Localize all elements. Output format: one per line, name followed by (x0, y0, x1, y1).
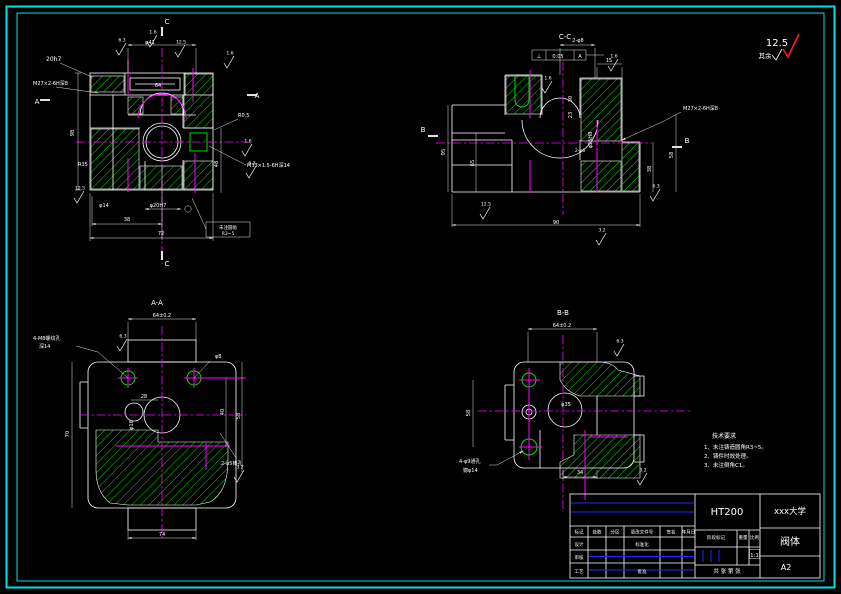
roughness-check-small-icon (772, 49, 782, 60)
notes-item-3: 3、未注倒角C1。 (704, 461, 748, 469)
tb-standardize-label: 标准化 (635, 541, 649, 548)
dimension-label: 38 (124, 217, 130, 223)
svg-text:6.3: 6.3 (119, 334, 126, 340)
dimension-label: 34 (577, 470, 583, 476)
dimension-label: C (165, 18, 170, 26)
dimension-label: φ35 (561, 402, 571, 408)
dimension-label: 30 (568, 96, 574, 102)
dimension-label: 48 (214, 161, 220, 167)
table-accent-lines (571, 503, 719, 570)
dimension-label: φ16 (129, 420, 135, 430)
dimension-label: 58 (669, 152, 675, 158)
svg-text:3.2: 3.2 (639, 468, 646, 474)
svg-text:3.2: 3.2 (236, 465, 243, 471)
tb-header-count: 处数 (593, 529, 602, 536)
title-block: HT200 xxx大学 阀体 A2 1:1 标记 处数 分区 更改文件号 签名 … (570, 494, 820, 578)
dimension-label: B-B (557, 309, 569, 317)
dimension-label: A (578, 54, 582, 60)
dimension-label: 74 (159, 532, 165, 538)
dimension-label: φ14 (99, 203, 109, 209)
dimension-label: 64 (155, 83, 161, 89)
tb-header-sign: 签名 (667, 529, 676, 536)
tb-stage-label: 阶段标记 (707, 534, 725, 541)
dimension-label: 58 (466, 410, 472, 416)
dimension-label: M27×2-6H深8 (683, 105, 718, 112)
roughness-mark: 6.3 (650, 184, 660, 202)
dimension-label: R35 (78, 162, 88, 168)
dimension-label: B (421, 126, 426, 134)
dimension-label: ⊥ (536, 53, 541, 60)
corner-roughness: 12.5 其余 (759, 34, 800, 60)
dimension-label: C-C (559, 33, 571, 41)
dimension-label: 64±0.2 (553, 323, 572, 329)
dimension-label: 58 (236, 413, 242, 419)
tb-header-zone: 分区 (611, 529, 620, 536)
svg-text:6.3: 6.3 (248, 161, 255, 167)
dimension-label: A (255, 92, 260, 100)
tb-process-label: 工艺 (575, 569, 584, 575)
dimension-label: 0.05 (552, 54, 563, 60)
tb-weight-label: 重量 (739, 534, 748, 541)
notes-item-1: 1、未注铸造圆角R3~5。 (704, 443, 767, 451)
svg-text:6.3: 6.3 (652, 184, 659, 190)
dimension-label: B (685, 137, 690, 145)
dimension-label: 4-φ9通孔 (459, 458, 480, 465)
drawing-svg: 12.5 其余 技术要求 1、未注铸造圆角R3~5。 2、铸件时效处理。 3、未… (0, 0, 841, 594)
tb-part-name: 阀体 (780, 535, 800, 548)
tb-material: HT200 (711, 507, 744, 518)
dimension-label: φ25H8 (588, 132, 594, 149)
svg-text:1.6: 1.6 (244, 139, 251, 145)
svg-text:6.3: 6.3 (616, 339, 623, 345)
tb-sheet-no: A2 (781, 563, 792, 572)
dimension-label: 2-φ8 (572, 38, 583, 44)
tb-header-date: 年月日 (682, 529, 696, 536)
dimension-label: 23 (568, 112, 574, 118)
dimension-label: 64±0.2 (153, 313, 172, 319)
tb-scale-label: 比例 (750, 534, 759, 541)
svg-text:1.6: 1.6 (610, 54, 617, 60)
dimension-label: 38 (647, 166, 653, 172)
technical-notes: 技术要求 1、未注铸造圆角R3~5。 2、铸件时效处理。 3、未注倒角C1。 (704, 432, 767, 469)
roughness-mark: 1.6 (242, 139, 252, 157)
dimension-label: M27×2-6H深8 (33, 80, 68, 87)
tb-check-label: 审核 (575, 554, 584, 561)
roughness-mark: 6.3 (614, 339, 624, 357)
dimension-label: R3~5 (222, 231, 235, 237)
dimension-label: φ20H7 (150, 203, 167, 209)
roughness-mark: 1.6 (542, 76, 552, 94)
tb-approve-label: 批准 (638, 568, 647, 575)
tb-scale-value: 1:1 (750, 553, 759, 559)
dimension-label: 4-M8螺纹孔 (33, 335, 60, 342)
tb-company: xxx大学 (774, 506, 807, 517)
roughness-mark: 1.6 (224, 51, 234, 69)
view-section-cc (428, 45, 682, 227)
roughness-mark: 3.2 (234, 465, 244, 483)
dimension-label: 65 (470, 160, 476, 166)
corner-rest-label: 其余 (759, 51, 773, 60)
roughness-mark: 12.5 (480, 202, 491, 220)
dimension-label: φ8 (215, 354, 221, 360)
dimension-label: R0.5 (238, 113, 249, 119)
svg-text:12.5: 12.5 (176, 40, 186, 46)
dimension-label: 70 (65, 431, 71, 437)
svg-text:1.6: 1.6 (544, 76, 551, 82)
tb-header-mark: 标记 (575, 529, 584, 536)
dimension-label: A-A (151, 299, 163, 307)
notes-title: 技术要求 (712, 432, 736, 440)
svg-text:1.6: 1.6 (226, 51, 233, 57)
tb-design-label: 设计 (575, 541, 584, 548)
dimension-label: C (165, 260, 170, 268)
tb-header-docno: 更改文件号 (631, 529, 654, 536)
svg-text:3.2: 3.2 (598, 228, 605, 234)
dimension-label: 40 (220, 409, 226, 415)
dimension-label: 90 (553, 220, 559, 226)
roughness-mark: 12.5 (74, 186, 85, 204)
roughness-mark: 6.3 (116, 38, 126, 56)
dimension-label: 20h7 (46, 56, 61, 63)
dimension-label: 98 (70, 130, 76, 136)
dimension-label: 深14 (39, 343, 50, 350)
view-section-aa (72, 319, 246, 540)
dimension-label: 2-φ6 (575, 148, 585, 154)
tb-sheet-label: 共 张 第 张 (713, 567, 741, 575)
svg-text:1.6: 1.6 (149, 30, 156, 36)
roughness-mark: 3.2 (596, 228, 606, 246)
view-section-bb (473, 329, 692, 512)
roughness-mark: 12.5 (175, 40, 186, 58)
svg-text:12.5: 12.5 (75, 186, 85, 192)
roughness-mark: 6.3 (117, 334, 127, 352)
dimension-label: A (35, 98, 40, 106)
dimension-label: 未注圆角 (219, 224, 237, 231)
svg-text:12.5: 12.5 (481, 202, 491, 208)
corner-roughness-value: 12.5 (766, 38, 788, 49)
dimension-label: 28 (141, 394, 147, 400)
dimension-label: 锪φ14 (463, 467, 478, 474)
dimension-label: 72 (158, 231, 164, 237)
cad-drawing-canvas: 12.5 其余 技术要求 1、未注铸造圆角R3~5。 2、铸件时效处理。 3、未… (0, 0, 841, 594)
dimension-label: 95 (441, 149, 447, 155)
svg-text:6.3: 6.3 (118, 38, 125, 44)
roughness-mark: 6.3 (246, 161, 256, 179)
section-marks-view2 (428, 136, 682, 147)
notes-item-2: 2、铸件时效处理。 (704, 452, 752, 460)
